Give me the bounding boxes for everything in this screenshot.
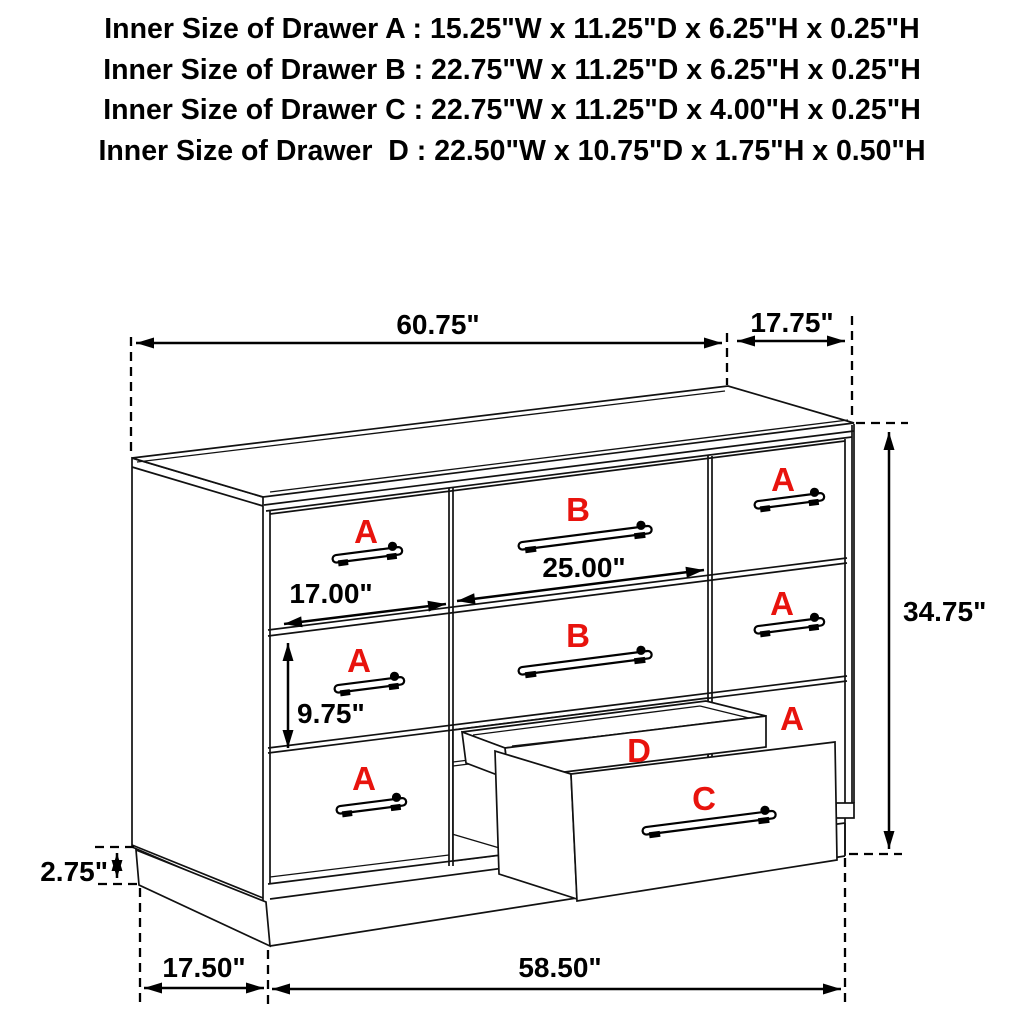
dimension-overall-height: 34.75" bbox=[849, 423, 986, 854]
dim-left-drawer-width-value: 17.00" bbox=[289, 578, 372, 609]
label-drawer-d: D bbox=[627, 732, 651, 769]
dimension-base-height: 2.75" bbox=[40, 847, 140, 887]
dim-base-depth-value: 17.50" bbox=[162, 952, 245, 983]
drawer-c-pullout bbox=[495, 742, 837, 901]
right-foot-bracket bbox=[836, 803, 854, 818]
dim-base-height-value: 2.75" bbox=[40, 856, 108, 887]
dim-top-depth-value: 17.75" bbox=[750, 307, 833, 338]
dim-drawer-height-value: 9.75" bbox=[297, 698, 365, 729]
label-drawer-a: A bbox=[354, 513, 378, 550]
dresser-line-drawing: A A A B B A A A D C 60.75" 17.75" bbox=[0, 0, 1024, 1024]
left-side-panel bbox=[132, 458, 263, 903]
dim-overall-height-value: 34.75" bbox=[903, 596, 986, 627]
dim-top-width-value: 60.75" bbox=[396, 309, 479, 340]
dim-center-drawer-width-value: 25.00" bbox=[542, 552, 625, 583]
cabinet-top bbox=[132, 386, 854, 497]
dresser-dimension-diagram-page: Inner Size of Drawer A : 15.25"W x 11.25… bbox=[0, 0, 1024, 1024]
label-drawer-c: C bbox=[692, 780, 716, 817]
label-drawer-a: A bbox=[347, 642, 371, 679]
label-drawer-a: A bbox=[352, 760, 376, 797]
label-drawer-a: A bbox=[770, 585, 794, 622]
label-drawer-b: B bbox=[566, 491, 590, 528]
dim-base-width-value: 58.50" bbox=[518, 952, 601, 983]
label-drawer-b: B bbox=[566, 617, 590, 654]
dimension-center-drawer-width: 25.00" bbox=[457, 552, 704, 601]
label-drawer-a: A bbox=[780, 700, 804, 737]
label-drawer-a: A bbox=[771, 461, 795, 498]
